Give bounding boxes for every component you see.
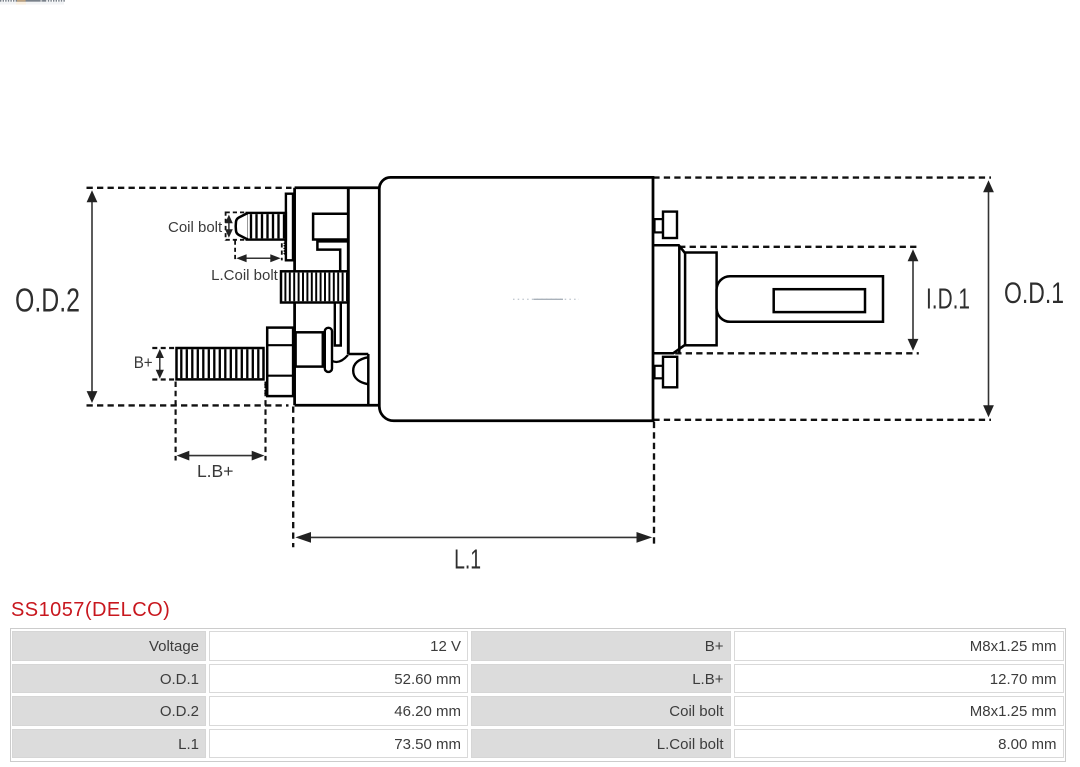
svg-text:B+: B+ [134, 353, 153, 372]
svg-text:I.D.1: I.D.1 [926, 283, 970, 315]
svg-text:L.Coil bolt: L.Coil bolt [211, 267, 279, 284]
svg-text:L.B+: L.B+ [197, 461, 234, 481]
svg-text:L.1: L.1 [454, 543, 481, 574]
svg-text:O.D.1: O.D.1 [1004, 277, 1064, 310]
svg-text:O.D.2: O.D.2 [15, 282, 80, 319]
svg-text:Coil bolt: Coil bolt [168, 219, 223, 236]
